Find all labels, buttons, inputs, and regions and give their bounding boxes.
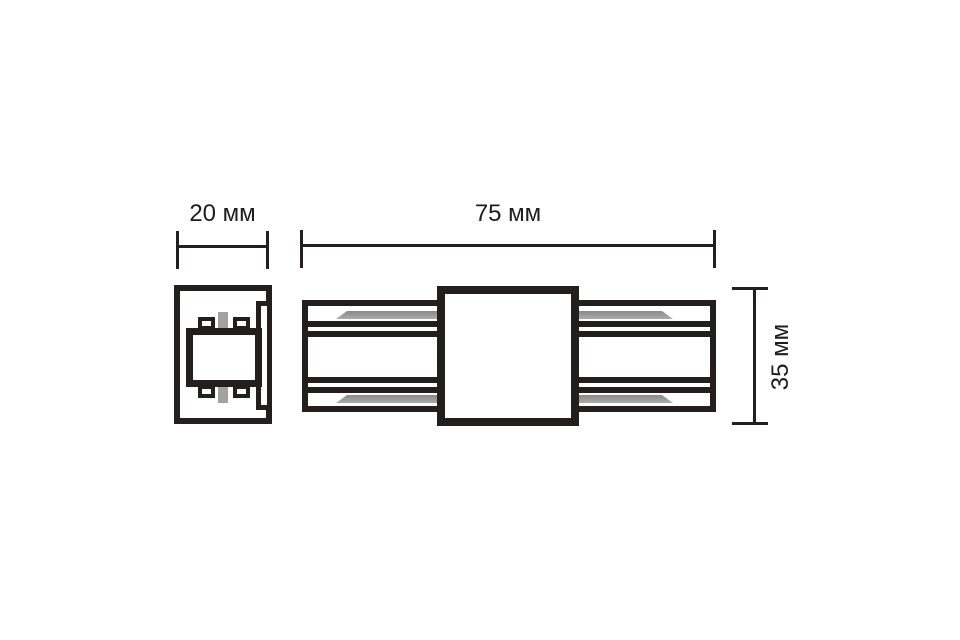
left-rail-conductor-strip-top (336, 311, 442, 319)
right-rail-conductor-strip-top (574, 311, 673, 319)
left-rail-groove-line-3 (302, 377, 442, 383)
left-rail-end-cap (302, 300, 308, 412)
end-view-connector-core (186, 328, 262, 387)
side-view-center-block (437, 286, 579, 426)
right-rail-top-edge (574, 300, 716, 306)
left-rail-bottom-edge (302, 406, 442, 412)
left-rail-groove-line-2 (302, 331, 442, 337)
right-rail-conductor-strip-bottom (574, 395, 673, 403)
end-view-contact-tab-top-left (198, 317, 215, 330)
right-rail-groove-line-1 (574, 321, 716, 327)
drawing-canvas: 20 мм 75 мм 35 мм (0, 0, 960, 640)
dimension-20mm-tick-left (176, 231, 179, 269)
dimension-20mm-label: 20 мм (177, 200, 268, 228)
dimension-20mm-tick-right (266, 231, 269, 269)
right-rail-groove-line-4 (574, 387, 716, 393)
left-rail-groove-line-1 (302, 321, 442, 327)
right-rail-groove-line-3 (574, 377, 716, 383)
dimension-35mm-label: 35 мм (767, 324, 795, 390)
dimension-35mm-cap-top (732, 287, 768, 290)
dimension-75mm-tick-left (300, 230, 303, 268)
dimension-35mm-cap-bottom (732, 422, 768, 425)
dimension-20mm-line (177, 245, 268, 248)
end-view-contact-tab-bottom-left (198, 385, 215, 398)
side-view-right-rail (574, 300, 716, 412)
right-rail-groove-line-2 (574, 331, 716, 337)
end-view-contact-tab-top-right (233, 317, 250, 330)
side-view-left-rail (302, 300, 442, 412)
right-rail-bottom-edge (574, 406, 716, 412)
right-rail-end-cap (710, 300, 716, 412)
dimension-35mm-line (753, 288, 756, 425)
left-rail-groove-line-4 (302, 387, 442, 393)
dimension-75mm-line (300, 244, 716, 247)
left-rail-top-edge (302, 300, 442, 306)
left-rail-conductor-strip-bottom (336, 395, 442, 403)
dimension-75mm-label: 75 мм (300, 200, 716, 228)
dimension-75mm-tick-right (713, 230, 716, 268)
end-view-contact-tab-bottom-right (233, 385, 250, 398)
